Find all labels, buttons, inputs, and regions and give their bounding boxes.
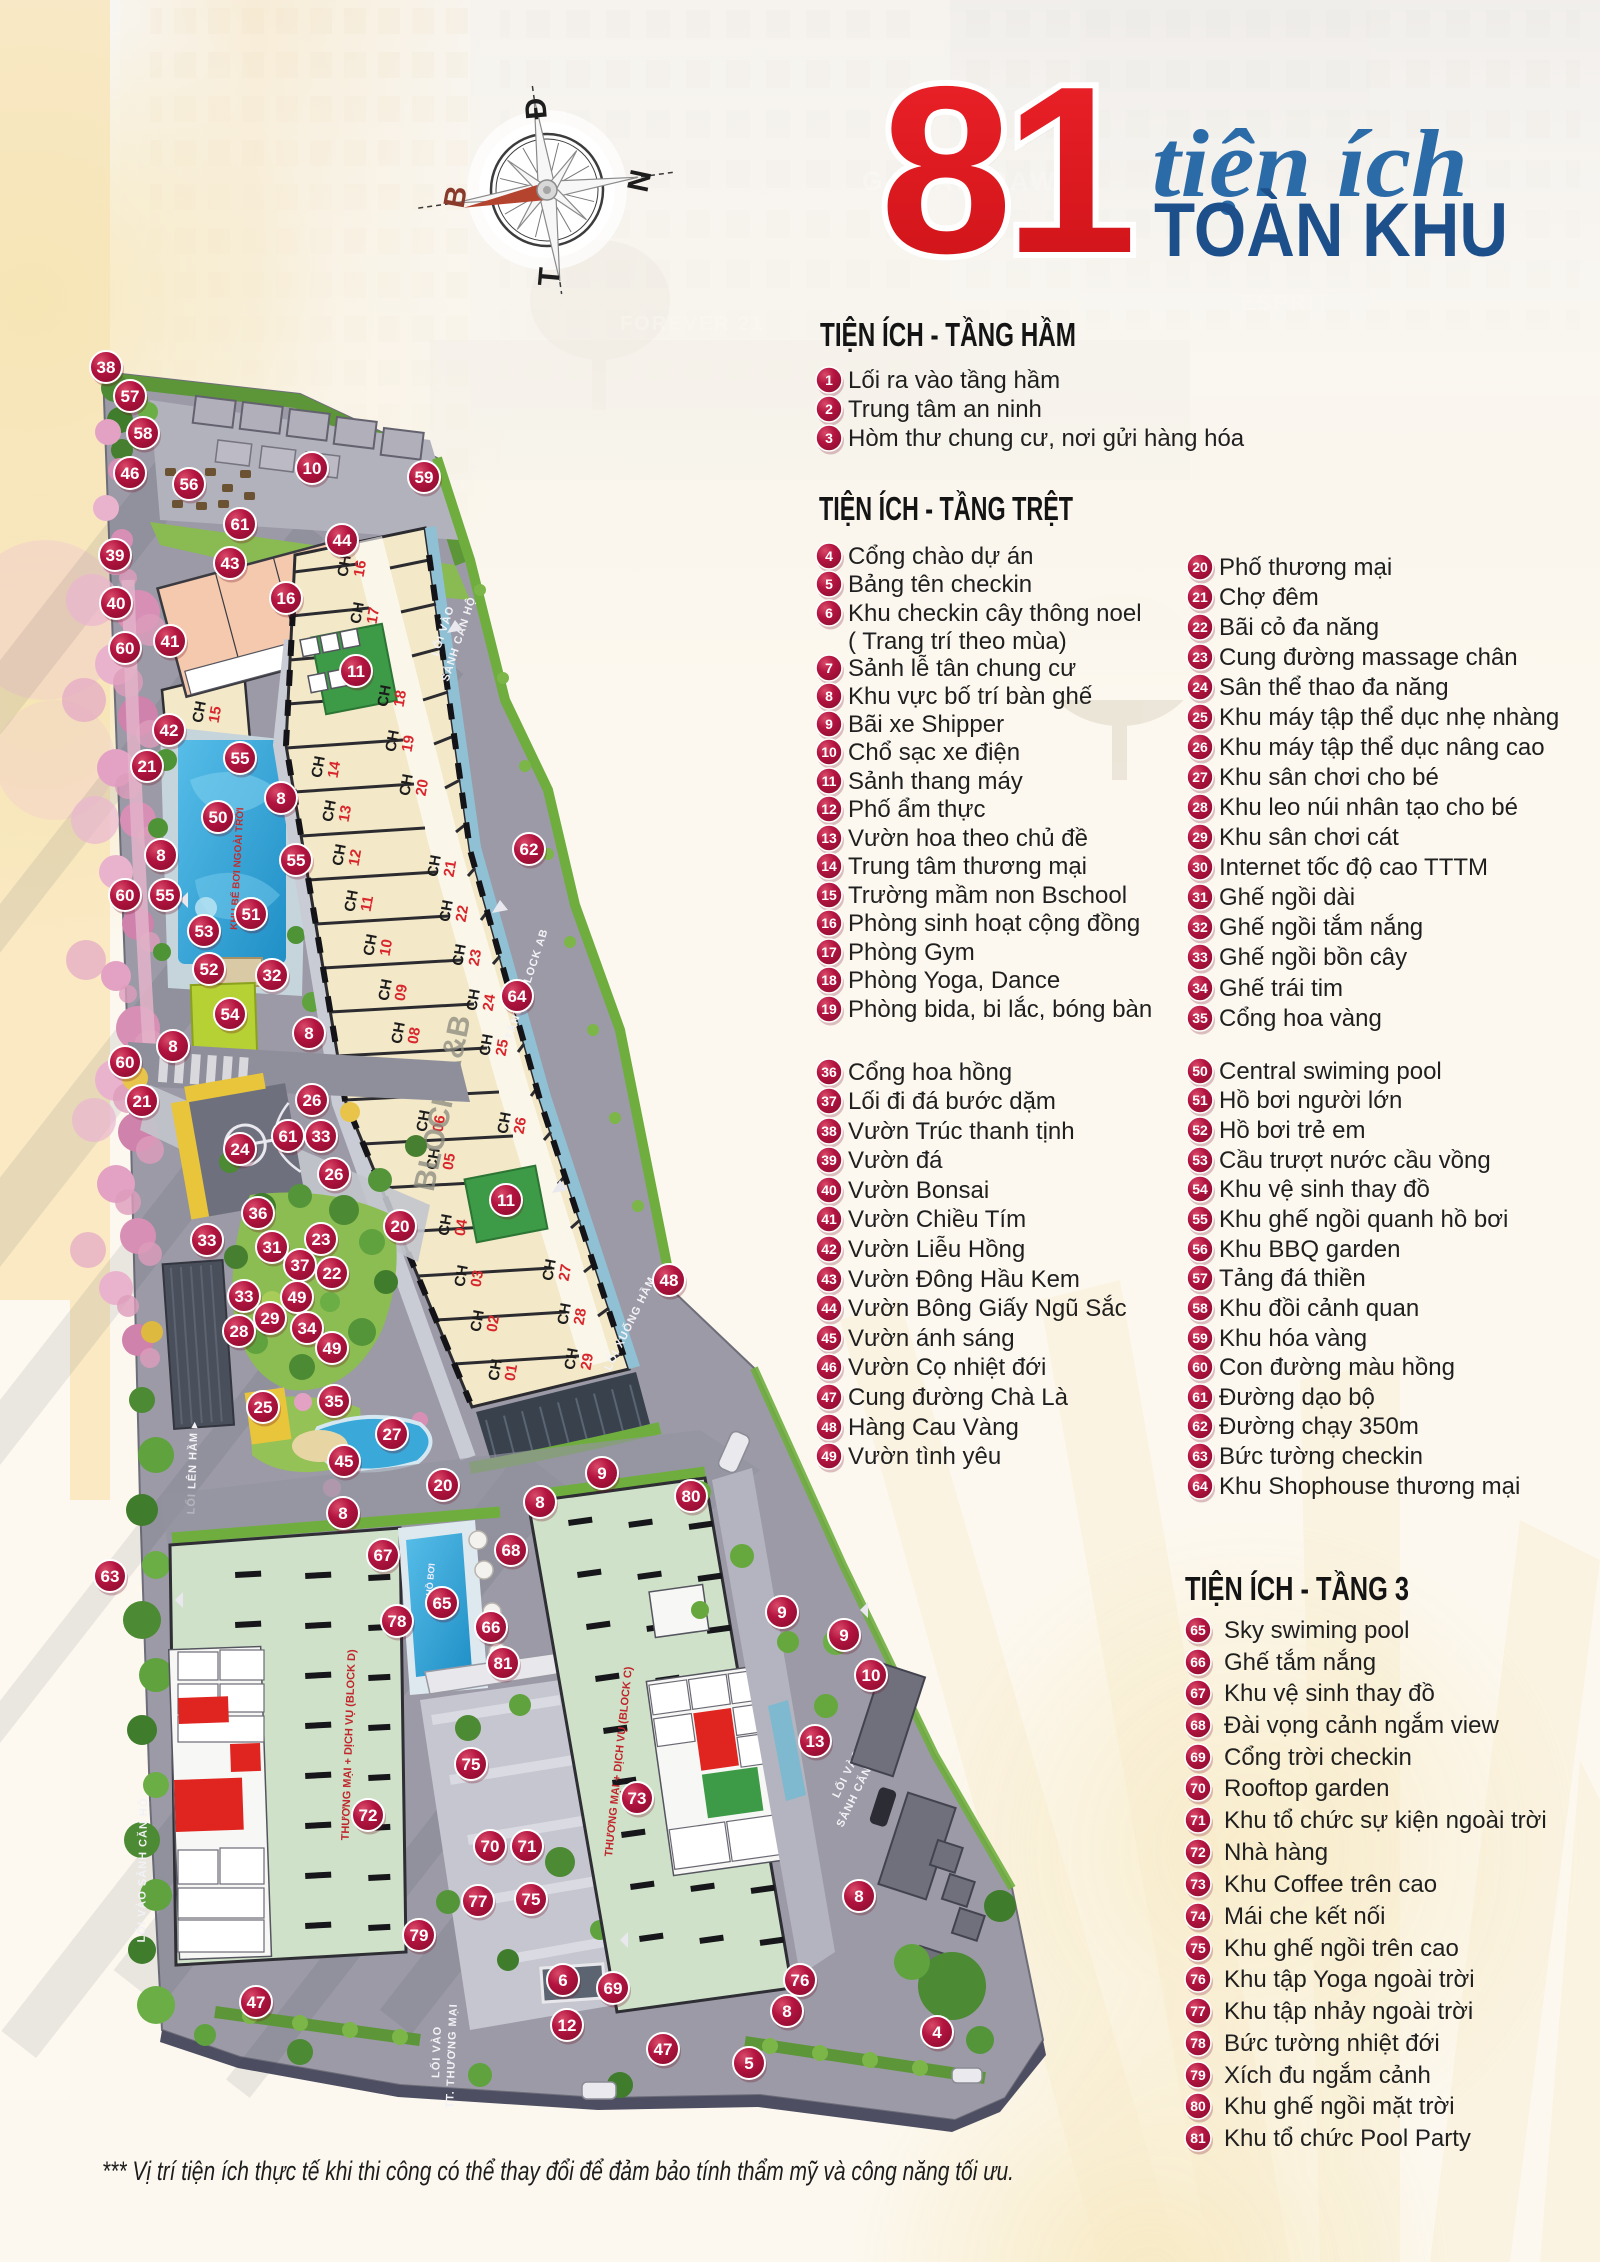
svg-text:8: 8: [338, 1504, 347, 1523]
svg-text:60: 60: [1192, 1359, 1208, 1375]
svg-text:Vườn Bonsai: Vườn Bonsai: [848, 1177, 989, 1204]
svg-text:47: 47: [654, 2040, 673, 2059]
svg-text:Khu sân chơi cho bé: Khu sân chơi cho bé: [1219, 764, 1439, 791]
svg-text:Khu vệ sinh thay đồ: Khu vệ sinh thay đồ: [1219, 1176, 1430, 1203]
svg-text:21: 21: [133, 1092, 152, 1111]
svg-text:42: 42: [821, 1241, 837, 1257]
svg-text:Internet tốc độ cao TTTM: Internet tốc độ cao TTTM: [1219, 854, 1488, 881]
svg-text:01: 01: [502, 1363, 522, 1382]
svg-text:Bức tường nhiệt đới: Bức tường nhiệt đới: [1224, 2030, 1440, 2057]
svg-text:64: 64: [1192, 1478, 1208, 1494]
svg-text:Vườn Đông Hầu Kem: Vườn Đông Hầu Kem: [848, 1266, 1080, 1293]
svg-text:Khu tập Yoga ngoài trời: Khu tập Yoga ngoài trời: [1224, 1966, 1475, 1993]
svg-text:Khu ghế ngồi quanh hồ bơi: Khu ghế ngồi quanh hồ bơi: [1219, 1206, 1508, 1233]
svg-text:29: 29: [578, 1352, 598, 1371]
svg-text:21: 21: [138, 757, 157, 776]
svg-text:26: 26: [325, 1165, 344, 1184]
svg-text:Ghế ngồi dài: Ghế ngồi dài: [1219, 884, 1355, 911]
svg-text:Ghế tắm nắng: Ghế tắm nắng: [1224, 1649, 1376, 1676]
svg-text:57: 57: [121, 387, 140, 406]
svg-text:Khu tổ chức sự kiện ngoài trời: Khu tổ chức sự kiện ngoài trời: [1224, 1807, 1547, 1834]
svg-text:Khu tổ chức Pool Party: Khu tổ chức Pool Party: [1224, 2125, 1471, 2152]
svg-text:Khu máy tập thể dục nâng cao: Khu máy tập thể dục nâng cao: [1219, 734, 1545, 761]
svg-text:Khu hóa vàng: Khu hóa vàng: [1219, 1325, 1367, 1352]
svg-text:22: 22: [1192, 619, 1208, 635]
svg-text:21: 21: [441, 859, 461, 878]
svg-text:11: 11: [497, 1191, 515, 1210]
svg-text:79: 79: [410, 1926, 429, 1945]
svg-text:23: 23: [466, 948, 486, 967]
svg-text:14: 14: [821, 858, 837, 874]
svg-text:Xích đu ngắm cảnh: Xích đu ngắm cảnh: [1224, 2062, 1431, 2089]
svg-text:59: 59: [415, 468, 434, 487]
svg-text:63: 63: [101, 1567, 120, 1586]
svg-text:38: 38: [97, 358, 116, 377]
svg-text:8: 8: [782, 2002, 791, 2021]
svg-text:75: 75: [522, 1890, 541, 1909]
svg-text:Vườn Trúc thanh tịnh: Vườn Trúc thanh tịnh: [848, 1118, 1075, 1145]
svg-text:TOÀN KHU: TOÀN KHU: [1154, 188, 1508, 273]
svg-text:38: 38: [821, 1123, 837, 1139]
svg-text:Hồ bơi người lớn: Hồ bơi người lớn: [1219, 1087, 1402, 1114]
svg-text:23: 23: [312, 1230, 331, 1249]
svg-text:43: 43: [821, 1271, 837, 1287]
svg-text:Chổ sạc xe điện: Chổ sạc xe điện: [848, 739, 1020, 766]
svg-text:56: 56: [180, 475, 199, 494]
svg-text:17: 17: [364, 606, 384, 625]
svg-text:Phòng Yoga, Dance: Phòng Yoga, Dance: [848, 967, 1060, 994]
svg-text:27: 27: [383, 1425, 402, 1444]
svg-text:Vườn Bông Giấy Ngũ Sắc: Vườn Bông Giấy Ngũ Sắc: [848, 1295, 1127, 1322]
svg-text:TIỆN ÍCH - TẦNG 3: TIỆN ÍCH - TẦNG 3: [1185, 1570, 1409, 1607]
svg-text:78: 78: [1190, 2035, 1206, 2051]
svg-text:39: 39: [821, 1152, 837, 1168]
svg-text:16: 16: [351, 559, 371, 578]
svg-text:Cổng hoa vàng: Cổng hoa vàng: [1219, 1005, 1382, 1032]
svg-text:Hòm thư chung cư, nơi gửi hàng: Hòm thư chung cư, nơi gửi hàng hóa: [848, 425, 1245, 452]
svg-text:77: 77: [469, 1892, 488, 1911]
svg-text:9: 9: [839, 1626, 848, 1645]
svg-text:51: 51: [242, 905, 261, 924]
svg-text:61: 61: [1192, 1389, 1208, 1405]
svg-text:Khu sân chơi cát: Khu sân chơi cát: [1219, 824, 1399, 851]
svg-text:11: 11: [347, 662, 365, 681]
svg-text:Khu Coffee trên cao: Khu Coffee trên cao: [1224, 1871, 1437, 1898]
svg-text:46: 46: [121, 464, 140, 483]
svg-text:49: 49: [288, 1288, 307, 1307]
svg-text:54: 54: [1192, 1181, 1208, 1197]
svg-text:60: 60: [116, 639, 135, 658]
svg-text:12: 12: [821, 801, 837, 817]
svg-text:18: 18: [821, 972, 837, 988]
svg-text:Cổng hoa hồng: Cổng hoa hồng: [848, 1059, 1012, 1086]
svg-text:4: 4: [932, 2023, 942, 2042]
svg-text:57: 57: [1192, 1270, 1208, 1286]
svg-text:22: 22: [323, 1264, 342, 1283]
svg-text:7: 7: [825, 660, 833, 676]
svg-text:25: 25: [254, 1398, 273, 1417]
svg-text:20: 20: [434, 1476, 453, 1495]
svg-text:8: 8: [168, 1037, 177, 1056]
svg-text:70: 70: [481, 1837, 500, 1856]
svg-text:76: 76: [791, 1971, 810, 1990]
svg-text:28: 28: [571, 1307, 591, 1326]
svg-text:45: 45: [335, 1452, 354, 1471]
svg-text:15: 15: [821, 887, 837, 903]
svg-text:Phòng sinh hoạt cộng đồng: Phòng sinh hoạt cộng đồng: [848, 910, 1140, 937]
svg-text:Nhà hàng: Nhà hàng: [1224, 1839, 1328, 1866]
svg-text:47: 47: [247, 1993, 266, 2012]
svg-text:36: 36: [249, 1204, 268, 1223]
svg-text:Sky swiming pool: Sky swiming pool: [1224, 1617, 1409, 1644]
svg-text:13: 13: [821, 830, 837, 846]
svg-text:43: 43: [221, 554, 240, 573]
svg-text:81: 81: [880, 38, 1130, 303]
svg-text:35: 35: [325, 1392, 344, 1411]
svg-text:4: 4: [825, 548, 833, 564]
svg-text:33: 33: [1192, 949, 1208, 965]
svg-text:71: 71: [518, 1837, 537, 1856]
svg-text:24: 24: [1192, 679, 1208, 695]
svg-text:67: 67: [374, 1546, 393, 1565]
svg-text:15: 15: [206, 705, 226, 724]
svg-text:13: 13: [336, 804, 356, 823]
svg-text:12: 12: [558, 2016, 577, 2035]
svg-text:Khu ghế ngồi mặt trời: Khu ghế ngồi mặt trời: [1224, 2093, 1455, 2120]
svg-text:46: 46: [821, 1359, 837, 1375]
svg-text:47: 47: [821, 1389, 837, 1405]
svg-text:26: 26: [303, 1091, 322, 1110]
svg-text:34: 34: [1192, 980, 1208, 996]
svg-text:40: 40: [821, 1182, 837, 1198]
svg-text:03: 03: [468, 1269, 488, 1288]
svg-text:16: 16: [821, 915, 837, 931]
svg-text:26: 26: [1192, 739, 1208, 755]
svg-text:17: 17: [821, 944, 837, 960]
svg-text:33: 33: [198, 1231, 217, 1250]
svg-text:26: 26: [511, 1116, 531, 1135]
svg-text:TIỆN ÍCH - TẦNG HẦM: TIỆN ÍCH - TẦNG HẦM: [820, 316, 1076, 353]
svg-text:Hàng Cau Vàng: Hàng Cau Vàng: [848, 1414, 1019, 1441]
svg-text:Central swiming pool: Central swiming pool: [1219, 1058, 1442, 1085]
svg-text:*** Vị trí tiện ích thực tế kh: *** Vị trí tiện ích thực tế khi thi công…: [102, 2156, 1014, 2186]
svg-text:36: 36: [821, 1064, 837, 1080]
svg-text:5: 5: [744, 2054, 753, 2073]
svg-text:19: 19: [821, 1001, 837, 1017]
svg-text:61: 61: [279, 1127, 298, 1146]
svg-text:3: 3: [825, 430, 833, 446]
svg-text:Khu tập nhảy ngoài trời: Khu tập nhảy ngoài trời: [1224, 1998, 1473, 2025]
svg-text:64: 64: [508, 987, 527, 1006]
svg-text:24: 24: [231, 1140, 250, 1159]
svg-text:33: 33: [312, 1127, 331, 1146]
svg-text:Sảnh lễ tân chung cư: Sảnh lễ tân chung cư: [848, 655, 1076, 682]
svg-text:80: 80: [1190, 2098, 1206, 2114]
svg-text:76: 76: [1190, 1971, 1206, 1987]
svg-text:Cổng chào dự án: Cổng chào dự án: [848, 543, 1034, 570]
svg-text:9: 9: [825, 716, 833, 732]
svg-text:68: 68: [502, 1541, 521, 1560]
svg-text:Khu máy tập thể dục nhẹ nhàng: Khu máy tập thể dục nhẹ nhàng: [1219, 704, 1559, 731]
svg-text:Khu đồi cảnh quan: Khu đồi cảnh quan: [1219, 1295, 1419, 1322]
svg-text:11: 11: [358, 894, 377, 913]
svg-text:Vườn Cọ nhiệt đới: Vườn Cọ nhiệt đới: [848, 1354, 1046, 1381]
svg-text:18: 18: [391, 689, 411, 708]
svg-text:22: 22: [453, 904, 473, 923]
svg-text:71: 71: [1190, 1812, 1206, 1828]
svg-text:Ghế ngồi bồn cây: Ghế ngồi bồn cây: [1219, 944, 1407, 971]
svg-text:37: 37: [821, 1093, 837, 1109]
svg-text:39: 39: [106, 546, 125, 565]
svg-text:61: 61: [231, 515, 250, 534]
svg-text:63: 63: [1192, 1448, 1208, 1464]
svg-text:Khu Shophouse thương mại: Khu Shophouse thương mại: [1219, 1473, 1520, 1500]
svg-text:8: 8: [535, 1493, 544, 1512]
svg-text:77: 77: [1190, 2003, 1206, 2019]
svg-text:49: 49: [821, 1448, 837, 1464]
svg-text:32: 32: [1192, 919, 1208, 935]
svg-text:1: 1: [825, 372, 833, 388]
svg-text:8: 8: [304, 1024, 313, 1043]
svg-text:Vườn hoa theo chủ đề: Vườn hoa theo chủ đề: [848, 825, 1088, 852]
svg-text:Phố thương mại: Phố thương mại: [1219, 554, 1392, 581]
svg-text:37: 37: [291, 1256, 310, 1275]
svg-text:48: 48: [821, 1419, 837, 1435]
svg-text:Bức tường checkin: Bức tường checkin: [1219, 1443, 1423, 1470]
svg-text:Đường chạy 350m: Đường chạy 350m: [1219, 1413, 1419, 1440]
svg-text:67: 67: [1190, 1685, 1206, 1701]
svg-text:Cổng trời checkin: Cổng trời checkin: [1224, 1744, 1412, 1771]
svg-text:55: 55: [156, 886, 175, 905]
svg-text:13: 13: [806, 1732, 825, 1751]
svg-text:Trung tâm thương mại: Trung tâm thương mại: [848, 853, 1087, 880]
svg-text:Sân thể thao đa năng: Sân thể thao đa năng: [1219, 674, 1449, 701]
svg-text:2: 2: [825, 401, 833, 417]
svg-text:9: 9: [777, 1603, 786, 1622]
svg-text:80: 80: [682, 1487, 701, 1506]
svg-text:79: 79: [1190, 2067, 1206, 2083]
svg-text:55: 55: [287, 851, 306, 870]
svg-text:9: 9: [597, 1464, 606, 1483]
svg-text:Khu vệ sinh thay đồ: Khu vệ sinh thay đồ: [1224, 1680, 1435, 1707]
svg-text:81: 81: [494, 1654, 513, 1673]
svg-text:52: 52: [200, 960, 219, 979]
svg-text:60: 60: [116, 1053, 135, 1072]
svg-text:Vườn tình yêu: Vườn tình yêu: [848, 1443, 1001, 1470]
svg-text:Lối đi đá bước dặm: Lối đi đá bước dặm: [848, 1088, 1056, 1115]
svg-text:54: 54: [221, 1005, 240, 1024]
svg-text:Trường mầm non Bschool: Trường mầm non Bschool: [848, 882, 1127, 909]
svg-text:Phố ẩm thực: Phố ẩm thực: [848, 796, 985, 823]
svg-text:49: 49: [323, 1339, 342, 1358]
svg-text:08: 08: [405, 1026, 425, 1045]
svg-text:Vườn đá: Vườn đá: [848, 1147, 943, 1174]
svg-text:58: 58: [134, 424, 153, 443]
svg-text:75: 75: [462, 1755, 481, 1774]
svg-text:Cầu trượt nước cầu vồng: Cầu trượt nước cầu vồng: [1219, 1147, 1491, 1174]
svg-text:Mái che kết nối: Mái che kết nối: [1224, 1903, 1385, 1930]
svg-text:6: 6: [825, 605, 833, 621]
svg-text:10: 10: [821, 744, 837, 760]
svg-text:Vườn Chiều Tím: Vườn Chiều Tím: [848, 1206, 1026, 1233]
svg-text:Đường dạo bộ: Đường dạo bộ: [1219, 1384, 1375, 1411]
svg-text:Khu vực bố trí bàn ghế: Khu vực bố trí bàn ghế: [848, 683, 1093, 710]
svg-text:19: 19: [399, 734, 419, 753]
svg-text:72: 72: [1190, 1844, 1206, 1860]
svg-text:20: 20: [413, 778, 433, 797]
svg-text:10: 10: [377, 938, 397, 957]
svg-text:09: 09: [392, 983, 412, 1002]
svg-text:25: 25: [1192, 709, 1208, 725]
svg-text:32: 32: [263, 966, 282, 985]
svg-text:35: 35: [1192, 1010, 1208, 1026]
svg-text:51: 51: [1192, 1092, 1208, 1108]
svg-text:53: 53: [195, 922, 214, 941]
svg-text:68: 68: [1190, 1717, 1206, 1733]
svg-text:72: 72: [359, 1806, 378, 1825]
svg-text:Đài vọng cảnh ngắm view: Đài vọng cảnh ngắm view: [1224, 1712, 1499, 1739]
svg-text:Tảng đá thiền: Tảng đá thiền: [1219, 1265, 1366, 1292]
svg-text:66: 66: [1190, 1654, 1206, 1670]
svg-text:52: 52: [1192, 1122, 1208, 1138]
svg-text:65: 65: [1190, 1622, 1206, 1638]
svg-text:75: 75: [1190, 1940, 1206, 1956]
svg-text:8: 8: [276, 789, 285, 808]
svg-text:59: 59: [1192, 1330, 1208, 1346]
svg-text:73: 73: [628, 1789, 647, 1808]
svg-text:50: 50: [1192, 1063, 1208, 1079]
svg-text:69: 69: [604, 1979, 623, 1998]
svg-text:8: 8: [825, 688, 833, 704]
svg-text:Phòng bida, bi lắc, bóng bàn: Phòng bida, bi lắc, bóng bàn: [848, 996, 1152, 1023]
svg-text:31: 31: [263, 1238, 282, 1257]
svg-text:10: 10: [303, 459, 322, 478]
svg-text:65: 65: [433, 1594, 452, 1613]
svg-text:Khu BBQ garden: Khu BBQ garden: [1219, 1236, 1400, 1263]
svg-text:Bảng tên checkin: Bảng tên checkin: [848, 571, 1032, 598]
svg-text:Khu ghế ngồi trên cao: Khu ghế ngồi trên cao: [1224, 1935, 1459, 1962]
svg-text:Cung đường massage chân: Cung đường massage chân: [1219, 644, 1518, 671]
svg-text:31: 31: [1192, 889, 1208, 905]
svg-text:42: 42: [160, 721, 179, 740]
svg-text:73: 73: [1190, 1876, 1206, 1892]
svg-text:TIỆN ÍCH - TẦNG TRỆT: TIỆN ÍCH - TẦNG TRỆT: [819, 490, 1073, 527]
svg-text:69: 69: [1190, 1749, 1206, 1765]
svg-text:8: 8: [854, 1887, 863, 1906]
svg-text:41: 41: [821, 1211, 837, 1227]
svg-text:23: 23: [1192, 649, 1208, 665]
svg-text:Vườn Liễu Hồng: Vườn Liễu Hồng: [848, 1236, 1025, 1263]
svg-text:11: 11: [822, 773, 837, 789]
svg-text:Khu leo núi nhân tạo cho bé: Khu leo núi nhân tạo cho bé: [1219, 794, 1518, 821]
svg-text:70: 70: [1190, 1780, 1206, 1796]
svg-text:74: 74: [1190, 1908, 1206, 1924]
svg-text:44: 44: [333, 531, 352, 550]
svg-text:Lối ra vào tầng hầm: Lối ra vào tầng hầm: [848, 367, 1060, 394]
svg-text:12: 12: [346, 848, 366, 867]
svg-text:8: 8: [156, 846, 165, 865]
svg-text:Chợ đêm: Chợ đêm: [1219, 584, 1319, 611]
svg-text:62: 62: [1192, 1418, 1208, 1434]
svg-text:62: 62: [520, 840, 539, 859]
svg-text:5: 5: [825, 576, 833, 592]
svg-text:34: 34: [298, 1319, 317, 1338]
svg-text:T: T: [532, 266, 566, 287]
svg-text:16: 16: [277, 589, 296, 608]
svg-text:28: 28: [230, 1322, 249, 1341]
svg-text:20: 20: [391, 1217, 410, 1236]
svg-text:Ghế trái tim: Ghế trái tim: [1219, 975, 1343, 1002]
svg-text:45: 45: [821, 1330, 837, 1346]
svg-text:Cung đường Chà Là: Cung đường Chà Là: [848, 1384, 1069, 1411]
svg-text:27: 27: [556, 1263, 576, 1282]
svg-text:Phòng Gym: Phòng Gym: [848, 939, 975, 966]
svg-text:27: 27: [1192, 769, 1208, 785]
svg-text:66: 66: [482, 1618, 501, 1637]
svg-text:Con đường màu hồng: Con đường màu hồng: [1219, 1354, 1455, 1381]
svg-text:50: 50: [209, 808, 228, 827]
svg-text:Sảnh thang máy: Sảnh thang máy: [848, 768, 1023, 795]
svg-text:Hồ bơi trẻ em: Hồ bơi trẻ em: [1219, 1117, 1365, 1144]
svg-text:10: 10: [862, 1666, 881, 1685]
svg-text:81: 81: [1190, 2130, 1206, 2146]
svg-text:25: 25: [493, 1038, 513, 1057]
svg-text:30: 30: [1192, 859, 1208, 875]
svg-text:28: 28: [1192, 799, 1208, 815]
svg-text:Vườn ánh sáng: Vườn ánh sáng: [848, 1325, 1015, 1352]
svg-text:60: 60: [116, 886, 135, 905]
svg-text:6: 6: [558, 1971, 567, 1990]
svg-text:Đ: Đ: [519, 96, 554, 120]
svg-text:Rooftop garden: Rooftop garden: [1224, 1775, 1389, 1802]
svg-text:29: 29: [1192, 829, 1208, 845]
svg-text:20: 20: [1192, 559, 1208, 575]
svg-text:33: 33: [235, 1287, 254, 1306]
svg-text:02: 02: [484, 1314, 504, 1333]
svg-text:21: 21: [1192, 589, 1208, 605]
svg-text:Bãi cỏ đa năng: Bãi cỏ đa năng: [1219, 614, 1379, 641]
svg-text:Khu checkin cây thông noel: Khu checkin cây thông noel: [848, 600, 1142, 627]
svg-text:Trung tâm an ninh: Trung tâm an ninh: [848, 396, 1042, 423]
svg-text:48: 48: [660, 1271, 679, 1290]
svg-text:40: 40: [107, 594, 126, 613]
svg-text:( Trang trí theo mùa): ( Trang trí theo mùa): [848, 628, 1067, 655]
svg-text:58: 58: [1192, 1300, 1208, 1316]
svg-text:78: 78: [388, 1612, 407, 1631]
svg-text:55: 55: [231, 749, 250, 768]
svg-text:Ghế ngồi tắm nắng: Ghế ngồi tắm nắng: [1219, 914, 1423, 941]
svg-text:44: 44: [821, 1300, 837, 1316]
svg-text:55: 55: [1192, 1211, 1208, 1227]
svg-text:41: 41: [161, 632, 180, 651]
svg-text:29: 29: [261, 1309, 280, 1328]
svg-text:56: 56: [1192, 1241, 1208, 1257]
svg-text:53: 53: [1192, 1152, 1208, 1168]
svg-text:Bãi xe Shipper: Bãi xe Shipper: [848, 711, 1004, 738]
